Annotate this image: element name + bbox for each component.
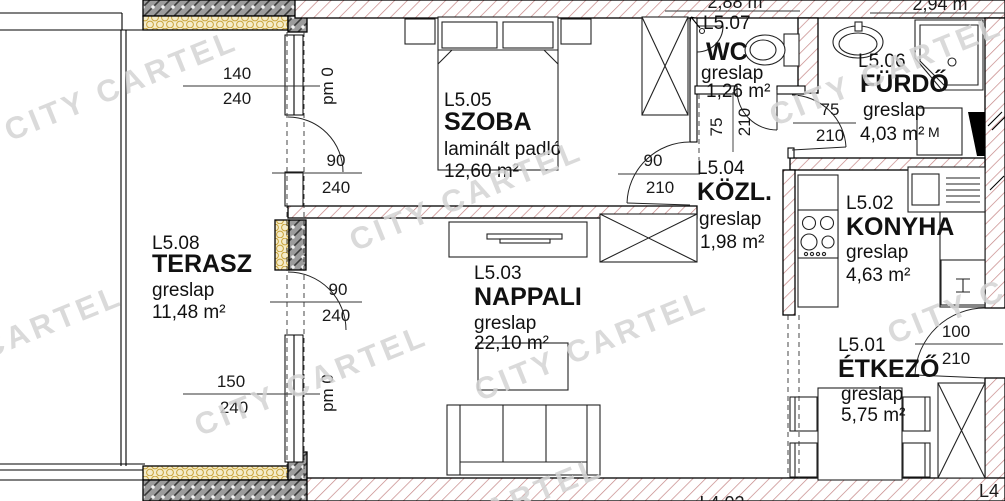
room-label-kozl: L5.04 KÖZL. greslap 1,98 m² [697,158,772,253]
washing-machine-label: M [928,124,940,140]
svg-text:greslap: greslap [863,100,925,121]
svg-text:210: 210 [816,126,844,145]
svg-text:NAPPALI: NAPPALI [474,283,582,311]
svg-text:greslap: greslap [846,242,908,263]
dim-door-szoba-kozl: 90 210 [618,151,700,197]
svg-text:greslap: greslap [474,313,536,334]
chair-icon [790,397,817,431]
wall-jamb-fill [968,112,985,156]
window-140 [285,35,303,115]
concrete-wall-mid [289,220,306,270]
svg-text:TERASZ: TERASZ [152,250,252,278]
svg-text:4,63 m²: 4,63 m² [846,265,910,286]
svg-text:KÖZL.: KÖZL. [697,177,772,206]
edge-label-top-right: 2,94 m [912,0,967,14]
wardrobe-icon [600,214,697,262]
svg-text:90: 90 [329,280,348,299]
svg-text:1,98 m²: 1,98 m² [700,232,764,253]
stove-icon [798,210,838,258]
dim-door-nappali-terasz: 90 240 [270,280,362,325]
wall-top [295,0,1005,18]
tv-cabinet-icon [449,222,587,257]
watermark: CITY CARTEL [0,278,128,404]
level-mark: pm 0 [318,67,337,105]
concrete-wall-top [143,0,307,16]
svg-text:L5.02: L5.02 [846,193,894,214]
svg-text:240: 240 [223,89,251,108]
svg-text:greslap: greslap [699,209,761,230]
room-label-terasz: L5.08 TERASZ greslap 11,48 m² [152,233,252,323]
concrete-wall-bottom [143,480,310,501]
wall-bottom [307,478,1005,501]
edge-label-bottom-center: L4.02 [699,493,744,501]
svg-text:140: 140 [223,64,251,83]
svg-text:WC: WC [706,38,748,66]
wall-szoba-kozl [690,18,697,142]
nightstand-icon [561,19,591,44]
svg-text:210: 210 [942,349,970,368]
edge-label-top-left: 2,88 m [707,0,762,12]
svg-text:4,03 m²: 4,03 m² [860,124,924,145]
svg-text:L5.07: L5.07 [703,13,751,34]
svg-text:210: 210 [735,108,754,136]
svg-text:5,75 m²: 5,75 m² [841,405,905,426]
svg-text:SZOBA: SZOBA [444,108,532,136]
svg-text:L5.01: L5.01 [838,335,886,356]
svg-text:150: 150 [217,372,245,391]
svg-text:L5.03: L5.03 [474,263,522,284]
svg-text:ÉTKEZŐ: ÉTKEZŐ [838,354,939,383]
svg-text:L5.04: L5.04 [697,158,745,179]
insulation-mid [275,220,289,270]
svg-text:210: 210 [646,178,674,197]
floor-plan: 140 240 pm 0 90 240 90 210 75 210 75 210… [0,0,1005,501]
svg-text:KONYHA: KONYHA [846,213,954,241]
svg-text:75: 75 [707,118,726,137]
toilet-icon [745,34,799,66]
svg-text:1,26 m²: 1,26 m² [706,81,770,102]
svg-text:90: 90 [644,151,663,170]
wall-nappali-konyha [783,170,795,315]
chair-icon [790,443,817,477]
nightstand-icon [405,19,435,44]
wardrobe-icon [938,383,985,478]
svg-text:90: 90 [327,151,346,170]
wall-right-upper [985,18,1005,308]
svg-text:240: 240 [322,178,350,197]
svg-text:greslap: greslap [152,280,214,301]
insulation-bottom [143,466,288,480]
wardrobe-icon [642,17,688,115]
kitchen-sink-icon [908,167,985,212]
edge-label-bottom-right: L4 [979,481,999,501]
svg-text:11,48 m²: 11,48 m² [152,302,226,323]
svg-text:240: 240 [322,306,350,325]
chair-icon [903,443,930,477]
svg-text:greslap: greslap [841,384,903,405]
chair-icon [903,397,930,431]
